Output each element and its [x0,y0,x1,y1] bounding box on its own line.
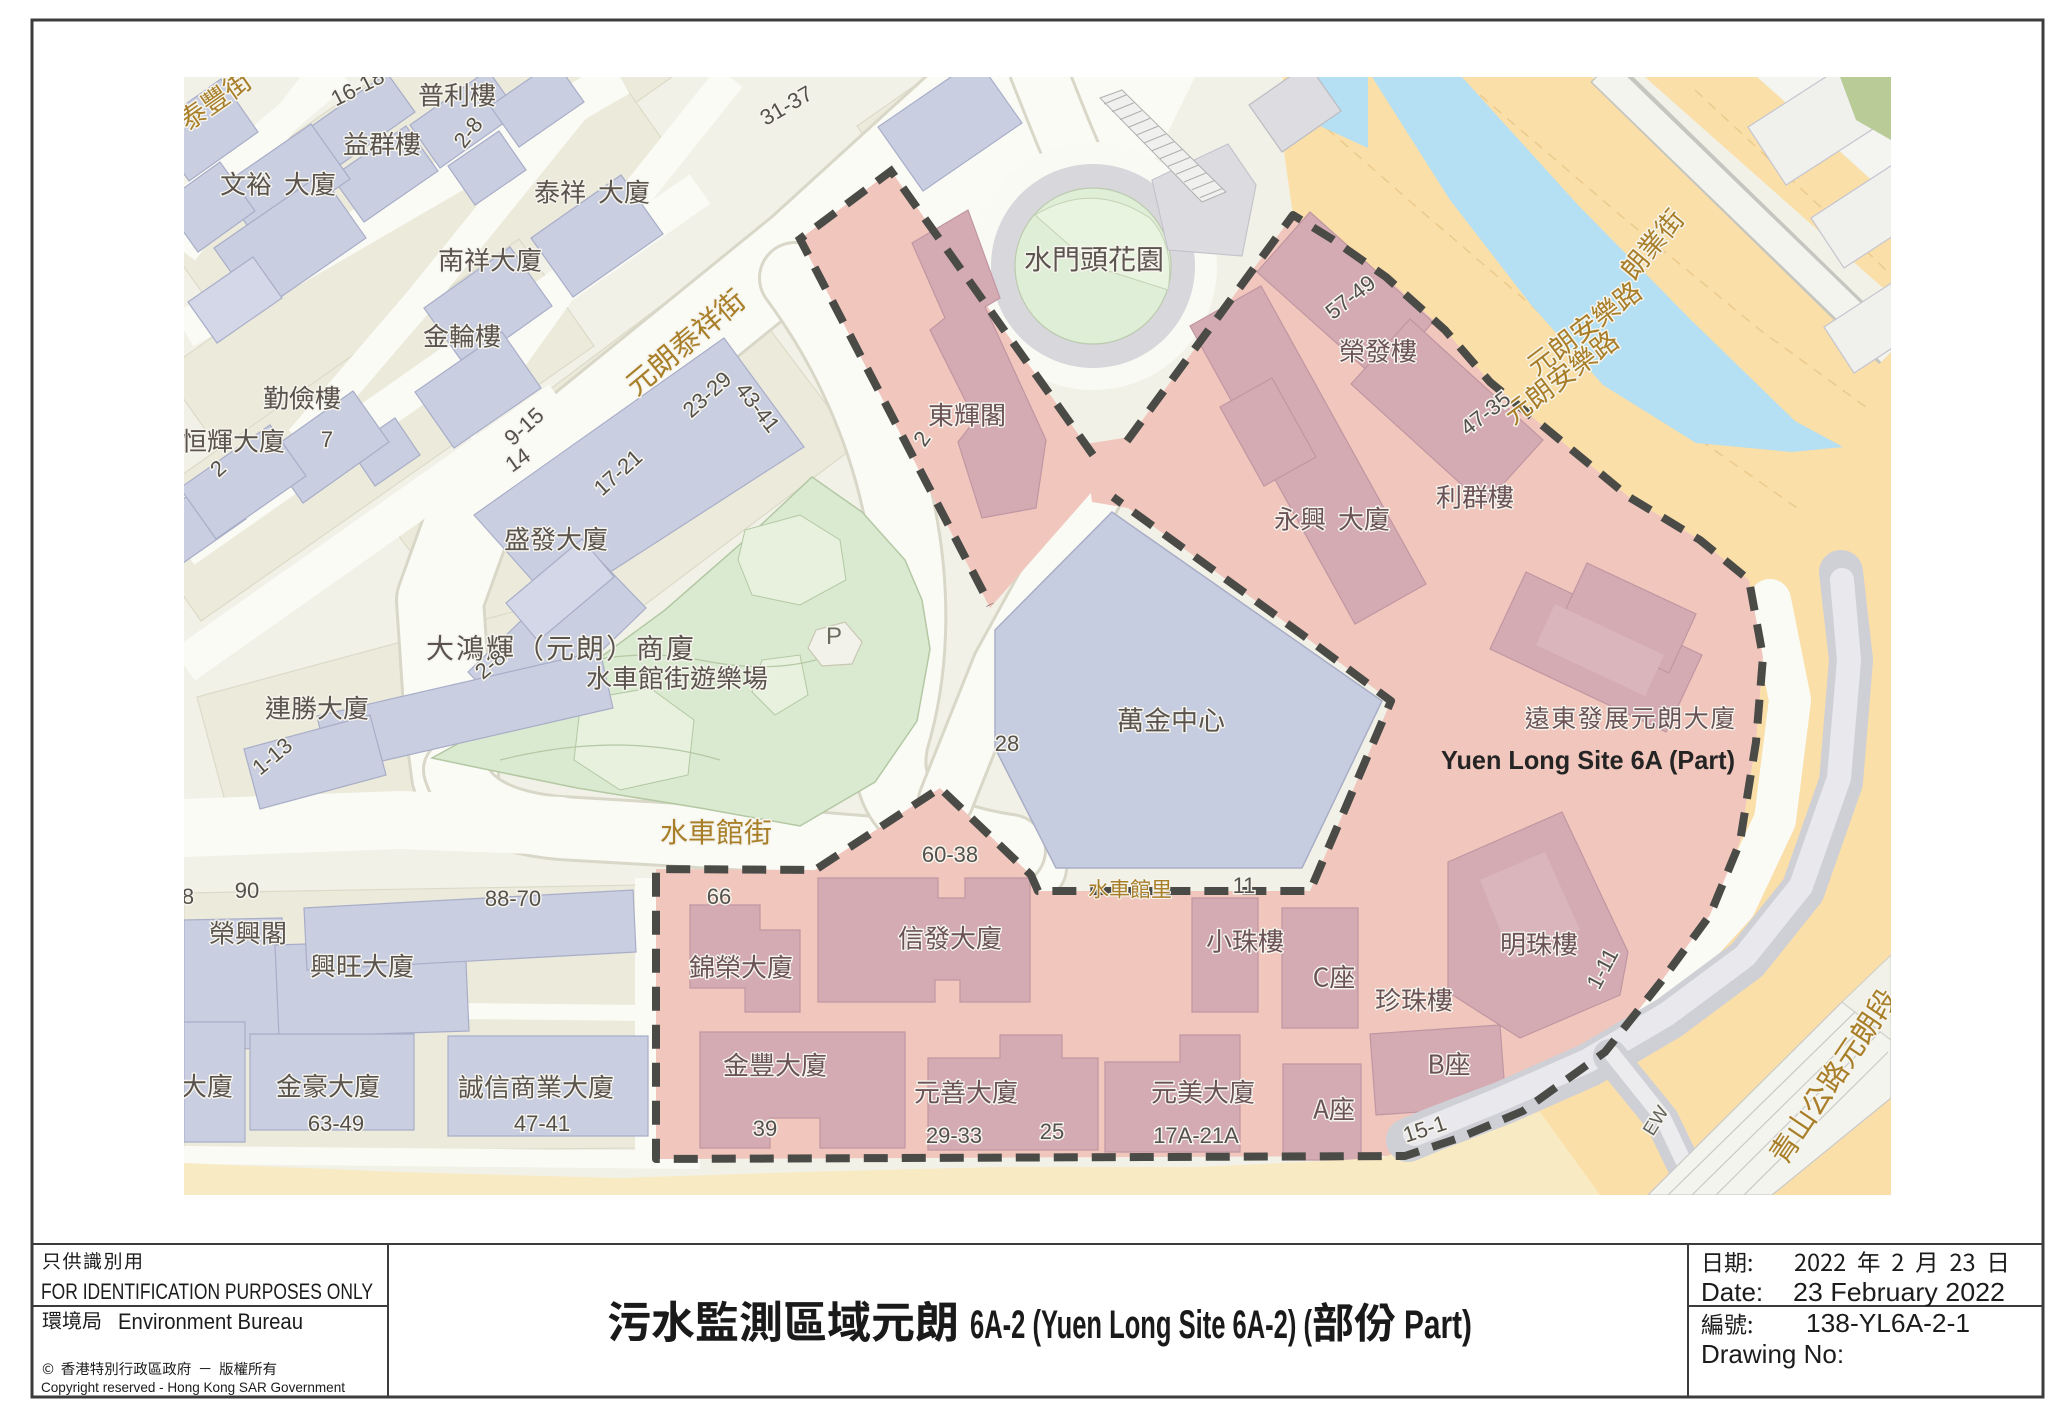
svg-text:Part): Part) [1404,1303,1472,1347]
svg-text:138-YL6A-2-1: 138-YL6A-2-1 [1806,1308,1970,1338]
svg-text:8: 8 [182,884,194,909]
svg-text:Copyright reserved - Hong Kong: Copyright reserved - Hong Kong SAR Gover… [41,1380,345,1395]
svg-text:17A-21A: 17A-21A [1153,1123,1239,1148]
svg-text:Environment Bureau: Environment Bureau [118,1309,303,1334]
svg-text:28: 28 [995,731,1019,756]
svg-text:Date:: Date: [1701,1277,1763,1307]
svg-text:39: 39 [753,1116,777,1141]
svg-text:66: 66 [707,884,731,909]
svg-text:29-33: 29-33 [926,1123,982,1148]
svg-text:60-38: 60-38 [922,842,978,867]
svg-text:FOR IDENTIFICATION PURPOSES ON: FOR IDENTIFICATION PURPOSES ONLY [41,1279,373,1304]
svg-text:47-41: 47-41 [514,1111,570,1136]
svg-text:7: 7 [321,427,333,452]
svg-text:90: 90 [235,878,259,903]
svg-text:63-49: 63-49 [308,1111,364,1136]
svg-text:Yuen Long Site 6A (Part): Yuen Long Site 6A (Part) [1441,745,1735,775]
svg-text:11: 11 [1233,873,1256,898]
svg-text:88-70: 88-70 [485,886,541,911]
svg-text:25: 25 [1040,1119,1064,1144]
svg-text:Drawing No:: Drawing No: [1701,1339,1844,1369]
svg-text:P: P [826,623,842,650]
svg-text:23 February 2022: 23 February 2022 [1793,1277,2005,1307]
svg-text:6A-2 (Yuen Long Site 6A-2) (: 6A-2 (Yuen Long Site 6A-2) ( [970,1303,1312,1347]
